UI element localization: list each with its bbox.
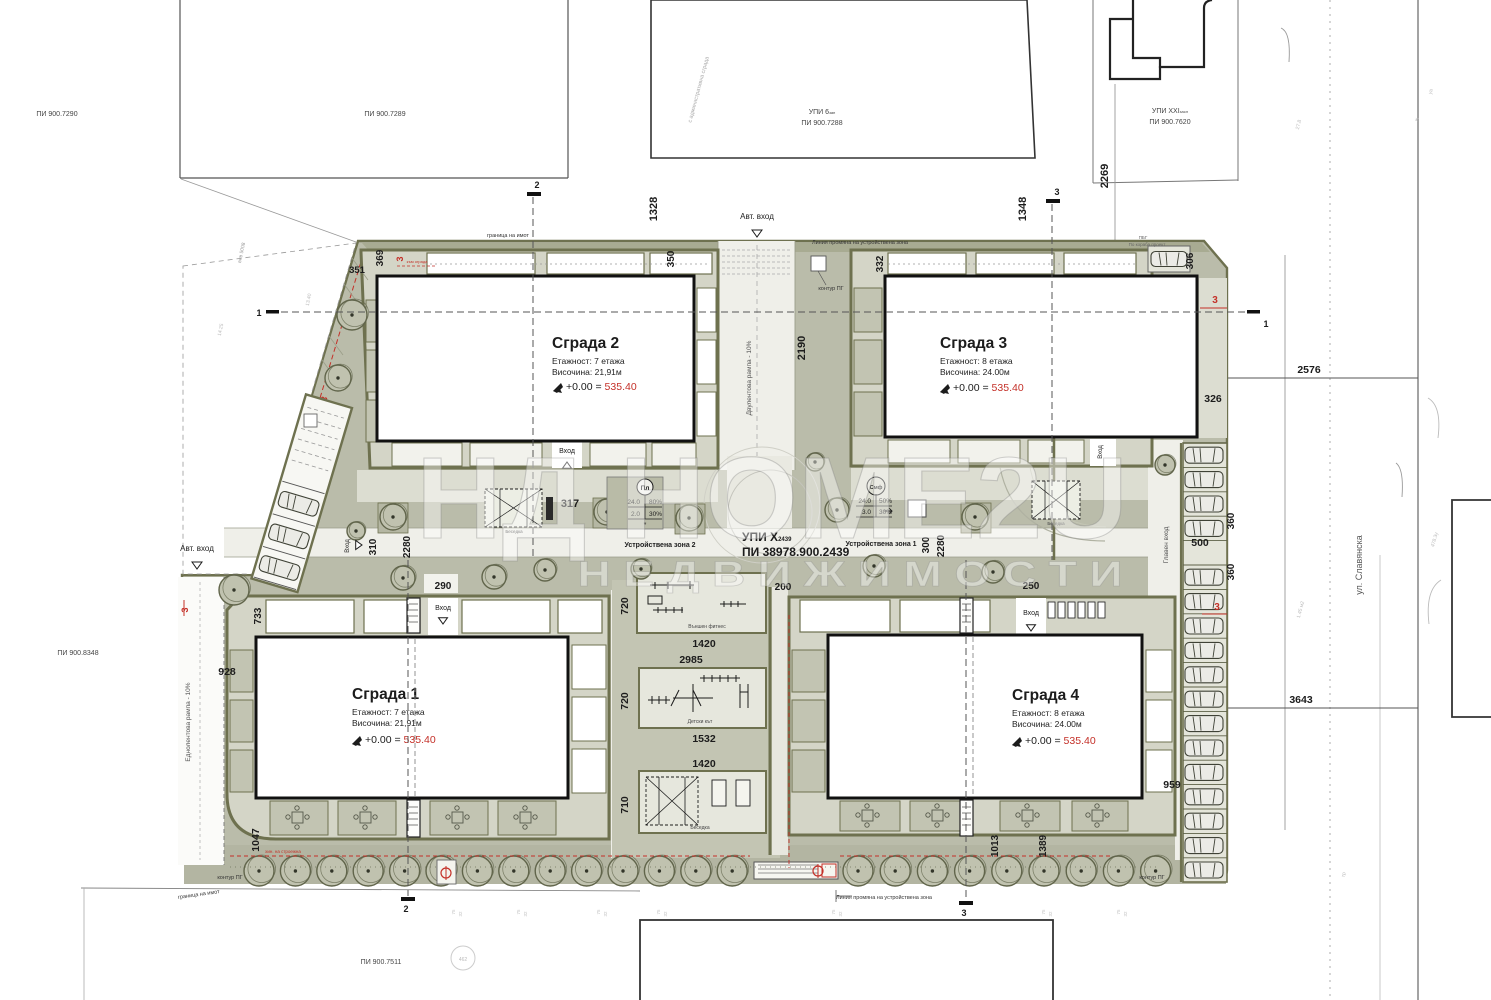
svg-text:928: 928: [218, 666, 236, 678]
svg-text:3: 3: [961, 908, 966, 918]
svg-text:75: 75: [1116, 909, 1121, 915]
svg-text:Двулентова рампа - 10%: Двулентова рампа - 10%: [746, 340, 753, 415]
svg-text:290: 290: [435, 581, 452, 592]
svg-text:Височина: 21,91м: Височина: 21,91м: [352, 718, 422, 728]
svg-text:ПИ 900.7290: ПИ 900.7290: [36, 111, 77, 118]
svg-text:369: 369: [375, 249, 386, 266]
svg-text:32: 32: [1048, 911, 1053, 917]
svg-text:2: 2: [534, 180, 539, 190]
svg-text:хин. на строежна: хин. на строежна: [265, 849, 301, 854]
svg-text:Линия промяна на устройствена: Линия промяна на устройствена зона: [812, 239, 909, 246]
svg-text:959: 959: [1163, 779, 1181, 791]
svg-text:Височина: 24.00м: Височина: 24.00м: [1012, 719, 1082, 729]
svg-text:Вход: Вход: [1023, 610, 1039, 617]
svg-text:326: 326: [1204, 393, 1222, 405]
svg-text:1047: 1047: [250, 828, 262, 852]
svg-text:3: 3: [180, 607, 190, 612]
svg-text:+0.00 = 535.40: +0.00 = 535.40: [953, 382, 1024, 394]
svg-text:75: 75: [1041, 909, 1046, 915]
svg-text:Вход: Вход: [345, 539, 351, 553]
svg-text:75: 75: [451, 909, 456, 915]
svg-text:32: 32: [1123, 911, 1128, 917]
svg-text:2576: 2576: [1297, 364, 1321, 376]
svg-text:Беседка: Беседка: [690, 825, 709, 831]
svg-text:УПИ XXIзасл: УПИ XXIзасл: [1152, 108, 1189, 115]
svg-text:1532: 1532: [692, 733, 716, 745]
svg-text:+0.00 = 535.40: +0.00 = 535.40: [1025, 735, 1096, 747]
svg-text:75: 75: [596, 909, 601, 915]
svg-text:306: 306: [1185, 252, 1196, 269]
svg-text:ПИ 900.7288: ПИ 900.7288: [801, 120, 842, 127]
svg-text:1: 1: [256, 308, 261, 318]
svg-text:500: 500: [1191, 537, 1209, 549]
svg-text:1348: 1348: [1017, 197, 1029, 221]
svg-text:3: 3: [1214, 602, 1220, 613]
svg-text:1: 1: [1263, 319, 1268, 329]
svg-text:Н Е Д В И Ж И М О С Т И: Н Е Д В И Ж И М О С Т И: [578, 555, 1123, 594]
svg-text:контур ПГ: контур ПГ: [818, 286, 843, 292]
svg-text:3: 3: [1212, 295, 1218, 306]
svg-text:контур ПГ: контур ПГ: [1139, 875, 1164, 881]
svg-text:350: 350: [666, 250, 677, 267]
svg-text:32: 32: [458, 911, 463, 917]
svg-text:Етажност: 7 етажа: Етажност: 7 етажа: [552, 356, 625, 366]
svg-text:Сграда 4: Сграда 4: [1012, 687, 1080, 704]
svg-text:ПБГ: ПБГ: [1139, 235, 1148, 240]
svg-text:32: 32: [523, 911, 528, 917]
svg-text:Сграда 2: Сграда 2: [552, 335, 619, 352]
svg-text:32: 32: [838, 911, 843, 917]
svg-text:720: 720: [619, 597, 631, 615]
svg-text:Етажност: 7 етажа: Етажност: 7 етажа: [352, 707, 425, 717]
svg-text:ПИ 900.7620: ПИ 900.7620: [1149, 119, 1190, 126]
svg-text:75: 75: [656, 909, 661, 915]
svg-text:контур ПГ: контур ПГ: [217, 875, 242, 881]
svg-text:+0.00 = 535.40: +0.00 = 535.40: [566, 381, 637, 393]
svg-text:ПИ 900.8348: ПИ 900.8348: [57, 650, 98, 657]
svg-text:332: 332: [875, 255, 886, 272]
svg-text:Авт. вход: Авт. вход: [180, 544, 214, 553]
svg-text:Вход: Вход: [435, 605, 451, 612]
svg-text:Височина: 21,91м: Височина: 21,91м: [552, 367, 622, 377]
svg-text:Еднолентова рампа - 10%: Еднолентова рампа - 10%: [185, 682, 192, 761]
svg-text:Сграда 1: Сграда 1: [352, 686, 420, 703]
svg-text:Външен фитнес: Външен фитнес: [688, 624, 726, 630]
svg-text:ул. Славянска: ул. Славянска: [1354, 535, 1364, 594]
svg-text:3643: 3643: [1289, 694, 1313, 706]
svg-text:Етажност: 8 етажа: Етажност: 8 етажа: [1012, 708, 1085, 718]
svg-text:към ограда: към ограда: [407, 259, 429, 264]
svg-text:75: 75: [516, 909, 521, 915]
svg-text:Авт. вход: Авт. вход: [740, 212, 774, 221]
svg-text:граница на имот: граница на имот: [487, 233, 529, 239]
svg-text:Височина: 24.00м: Височина: 24.00м: [940, 367, 1010, 377]
svg-text:360: 360: [1226, 563, 1237, 580]
svg-text:Детски кът: Детски кът: [688, 719, 713, 725]
svg-text:75: 75: [831, 909, 836, 915]
svg-text:360: 360: [1226, 512, 1237, 529]
svg-text:НД НОМЕ2U: НД НОМЕ2U: [416, 433, 1128, 563]
svg-text:3: 3: [395, 256, 405, 261]
svg-text:+0.00 = 535.40: +0.00 = 535.40: [365, 734, 436, 746]
svg-text:Сграда 3: Сграда 3: [940, 335, 1008, 352]
svg-text:2269: 2269: [1099, 164, 1111, 188]
svg-text:32: 32: [663, 911, 668, 917]
svg-text:2280: 2280: [402, 535, 413, 558]
svg-text:УПИ 6зап: УПИ 6зап: [809, 109, 836, 116]
svg-text:1420: 1420: [692, 638, 716, 650]
svg-text:733: 733: [253, 607, 264, 624]
svg-text:1420: 1420: [692, 758, 716, 770]
svg-text:ПИ 900.7511: ПИ 900.7511: [361, 959, 402, 966]
svg-text:462: 462: [459, 957, 468, 963]
svg-text:2985: 2985: [679, 654, 703, 666]
svg-text:32: 32: [603, 911, 608, 917]
svg-text:351: 351: [349, 265, 366, 276]
svg-text:3: 3: [1054, 187, 1059, 197]
svg-text:1013: 1013: [990, 834, 1001, 857]
svg-text:710: 710: [619, 796, 631, 814]
svg-text:310: 310: [368, 538, 379, 555]
svg-text:ПИ 900.7289: ПИ 900.7289: [364, 111, 405, 118]
svg-text:Линия промяна на устройствена: Линия промяна на устройствена зона: [836, 894, 933, 901]
svg-text:2190: 2190: [796, 336, 808, 360]
svg-text:Етажност: 8 етажа: Етажност: 8 етажа: [940, 356, 1013, 366]
svg-text:По кораба проект: По кораба проект: [1129, 242, 1166, 247]
svg-text:Главен вход: Главен вход: [1163, 526, 1170, 563]
svg-text:1328: 1328: [648, 197, 660, 221]
svg-text:2: 2: [403, 904, 408, 914]
svg-text:720: 720: [619, 692, 631, 710]
svg-text:1389: 1389: [1038, 834, 1049, 857]
